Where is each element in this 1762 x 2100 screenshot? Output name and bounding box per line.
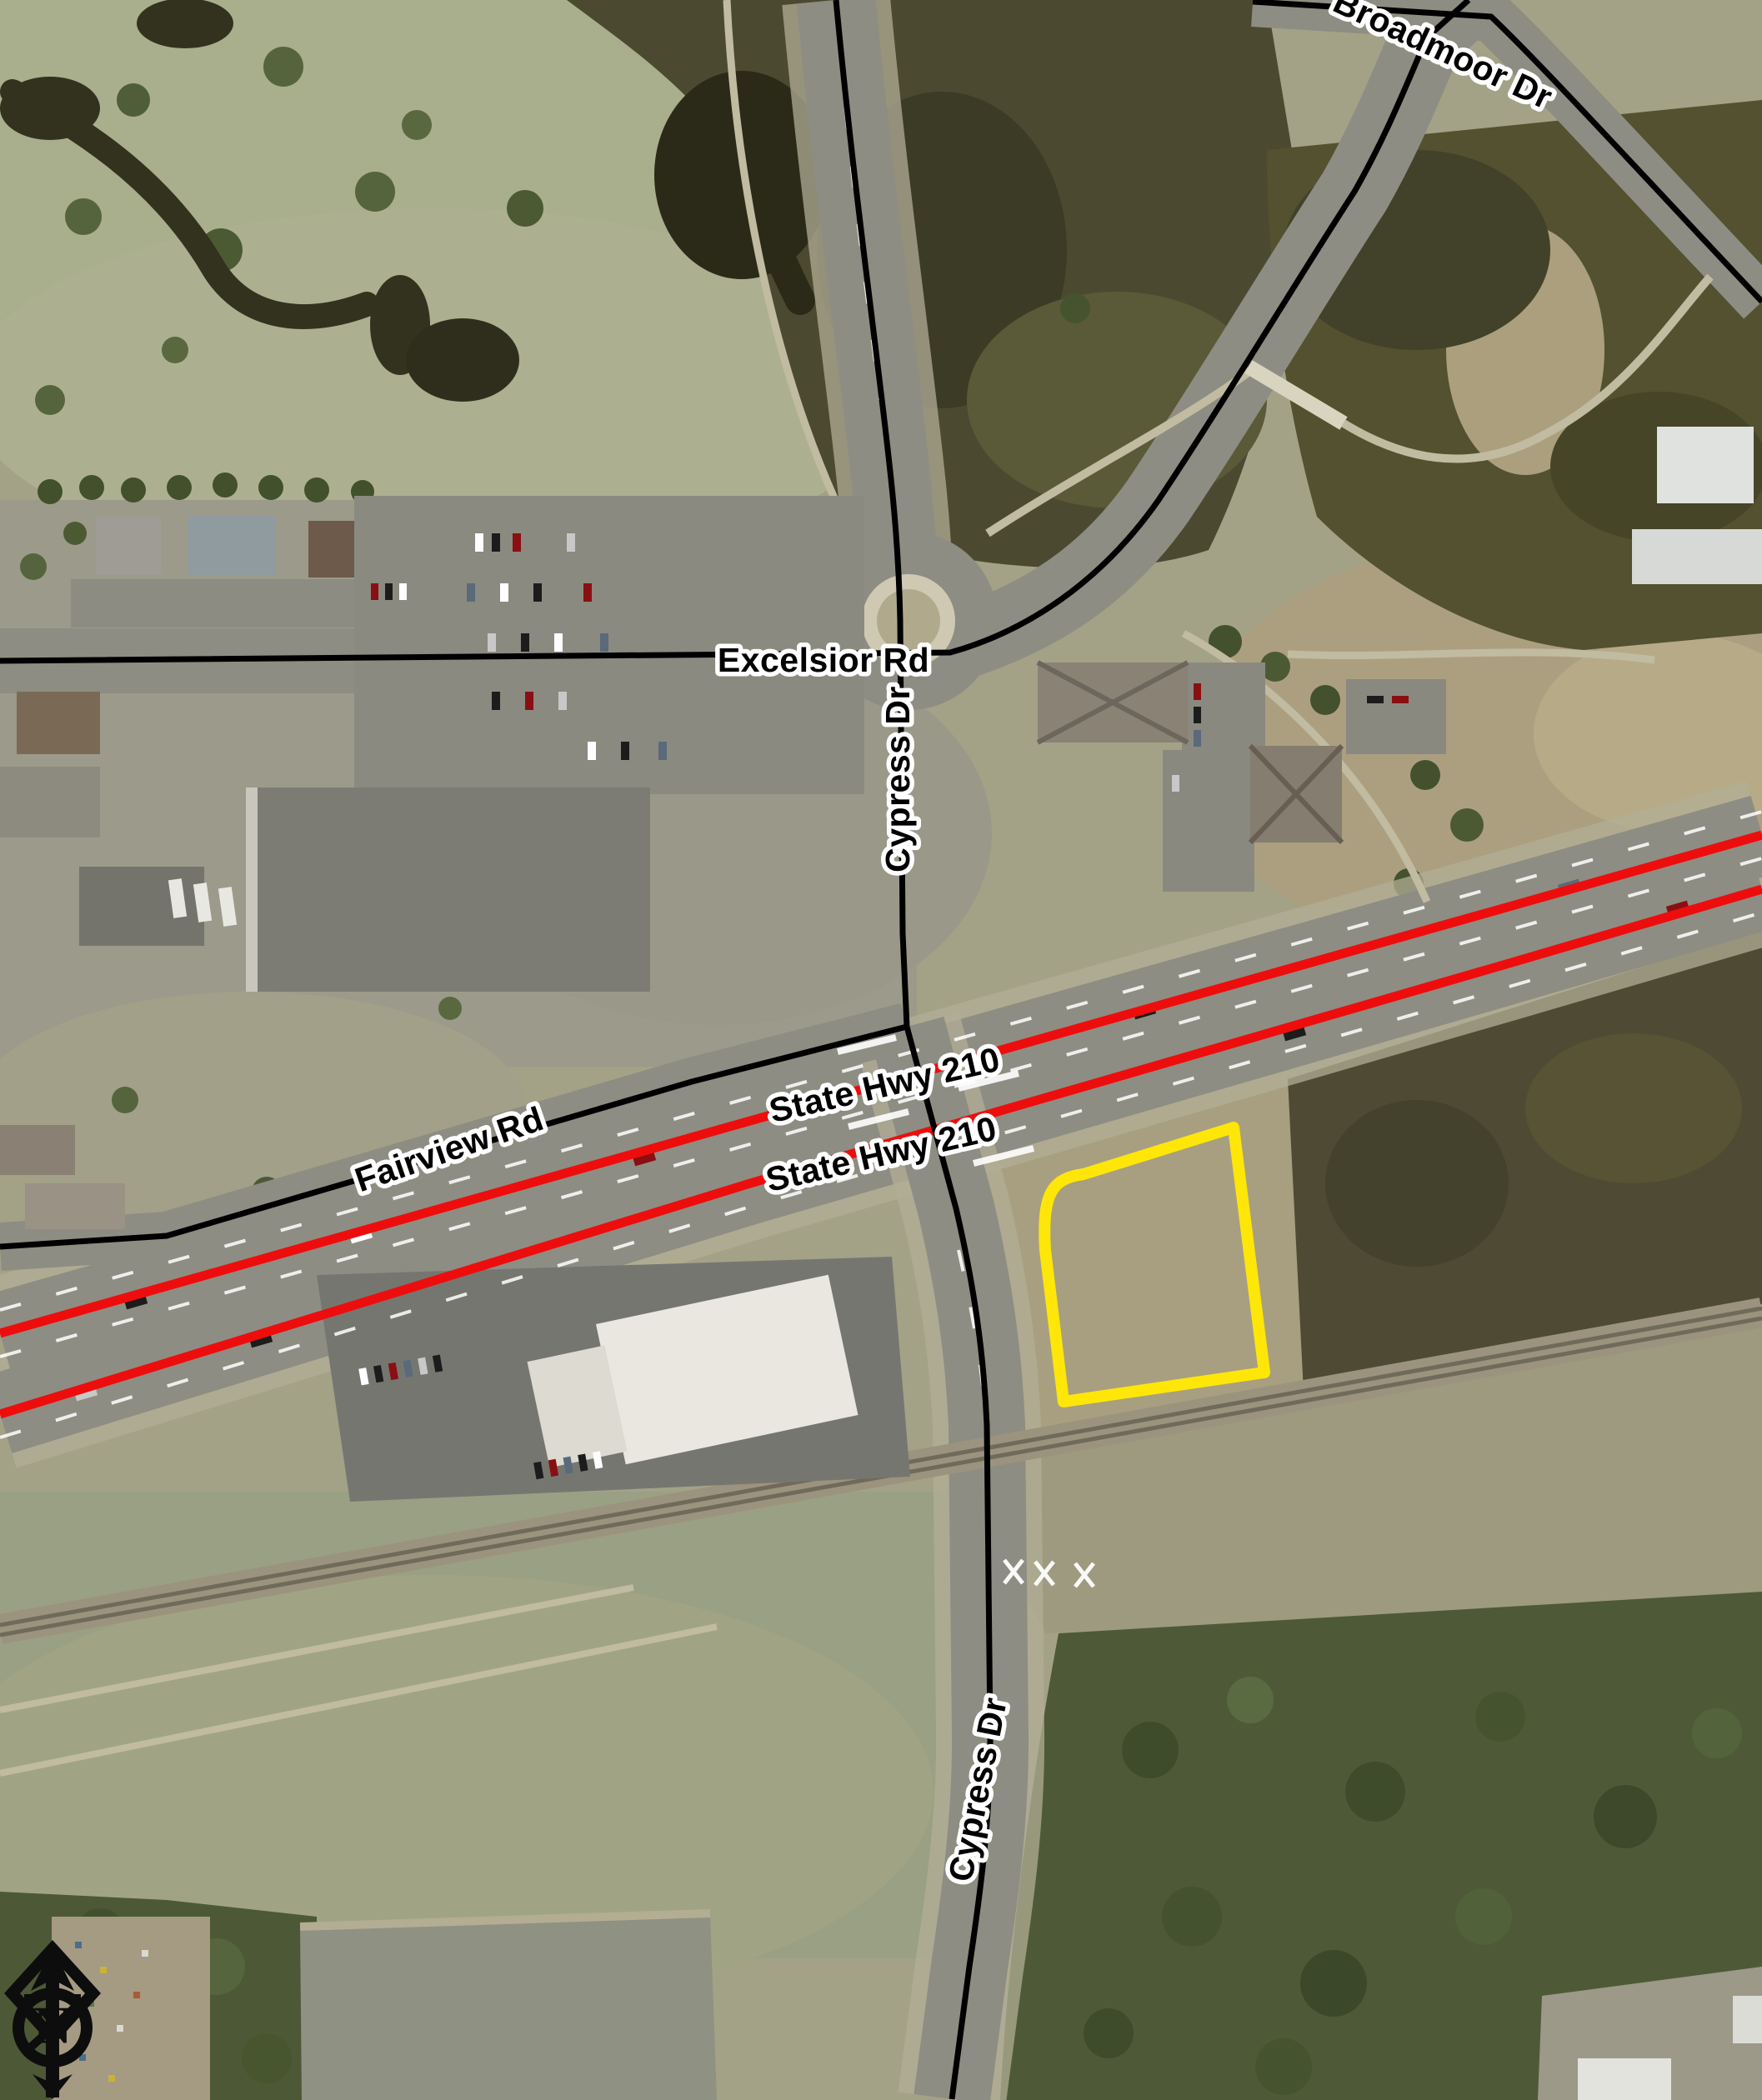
road-label-cypress-north: Cypress Dr bbox=[878, 686, 917, 872]
aerial-map-canvas: Broadmoor Dr Excelsior Rd Cypress Dr Fai… bbox=[0, 0, 1762, 2100]
north-arrow-letter: N bbox=[33, 1996, 72, 2055]
road-label-excelsior: Excelsior Rd bbox=[718, 641, 929, 679]
aerial-map: Broadmoor Dr Excelsior Rd Cypress Dr Fai… bbox=[0, 0, 1762, 2100]
